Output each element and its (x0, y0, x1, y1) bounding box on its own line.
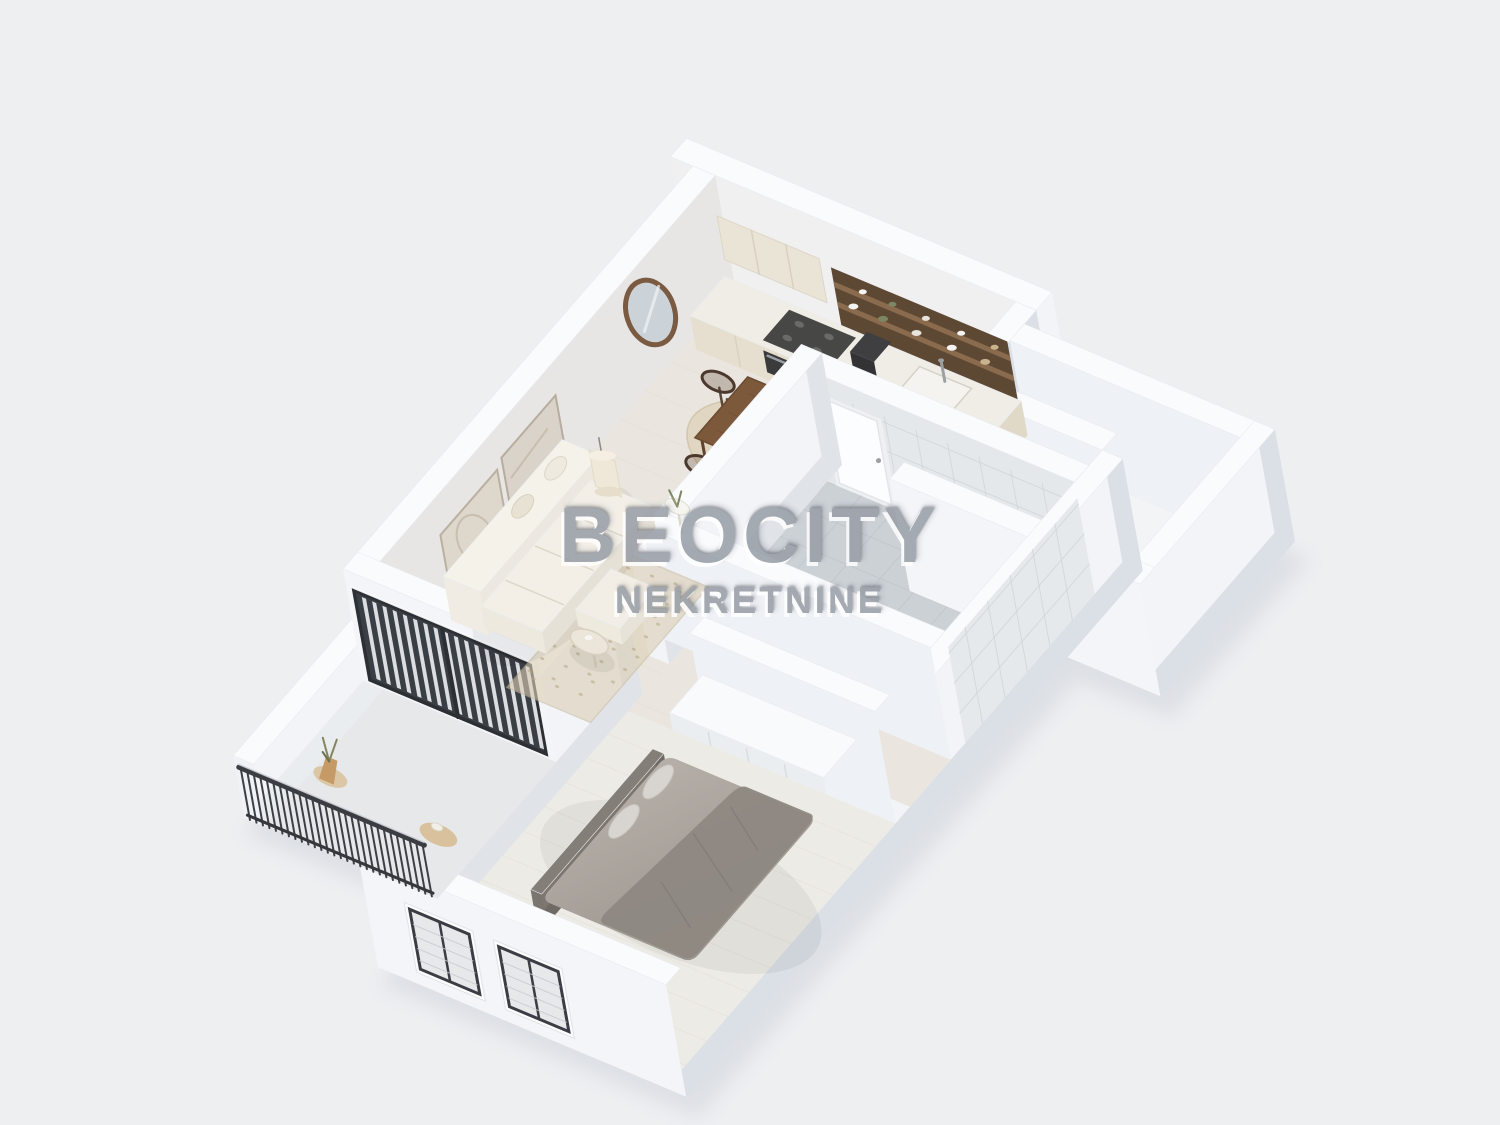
floorplan-page: BEOCITY NEKRETNINE (0, 0, 1500, 1125)
apartment-3d-render (0, 0, 1500, 1125)
